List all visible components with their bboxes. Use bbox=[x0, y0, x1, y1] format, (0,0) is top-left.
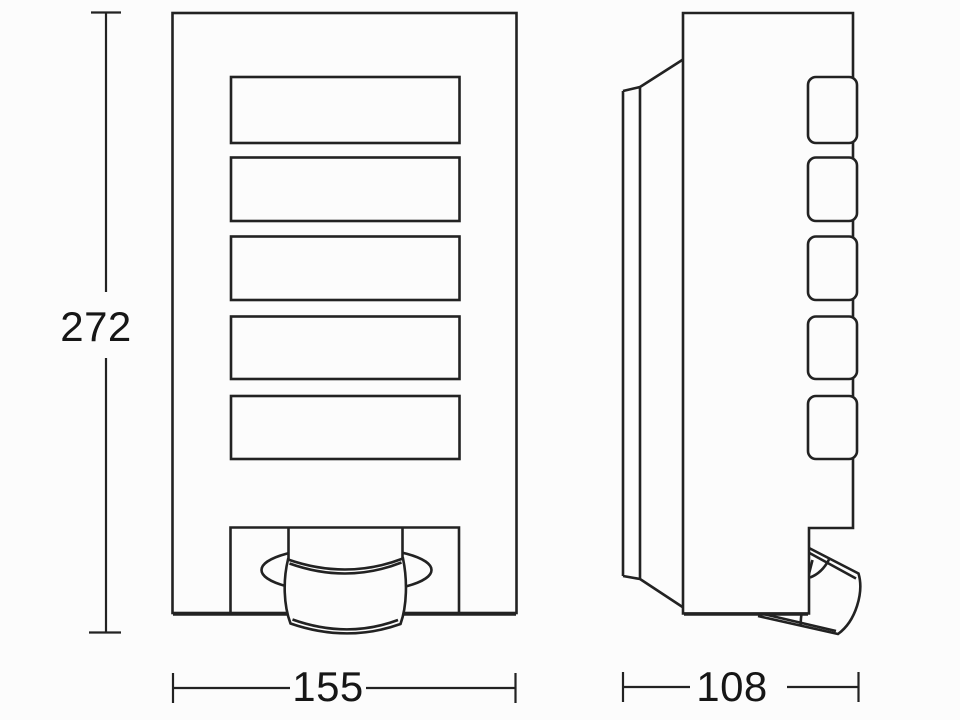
louver-slot bbox=[231, 158, 460, 222]
louver-slot bbox=[231, 396, 460, 459]
louver-slot bbox=[231, 317, 460, 380]
side-slot-tab bbox=[808, 158, 857, 222]
depth-dimension-value: 108 bbox=[696, 666, 768, 708]
wall-light-technical-drawing bbox=[0, 0, 960, 720]
louver-slot bbox=[231, 77, 460, 143]
width-dimension-value: 155 bbox=[292, 666, 364, 708]
side-view bbox=[623, 13, 860, 634]
front-view bbox=[173, 13, 517, 633]
louver-slot bbox=[231, 237, 460, 301]
side-slot-tab bbox=[808, 317, 857, 380]
side-slot-tab bbox=[808, 77, 857, 143]
side-slot-tab bbox=[808, 396, 857, 459]
height-dimension-value: 272 bbox=[60, 306, 132, 348]
wall-mount-plate bbox=[623, 60, 683, 608]
side-slot-tab bbox=[808, 237, 857, 301]
technical-drawing-page: 272 155 108 bbox=[0, 0, 960, 720]
front-body-outline bbox=[173, 13, 517, 613]
